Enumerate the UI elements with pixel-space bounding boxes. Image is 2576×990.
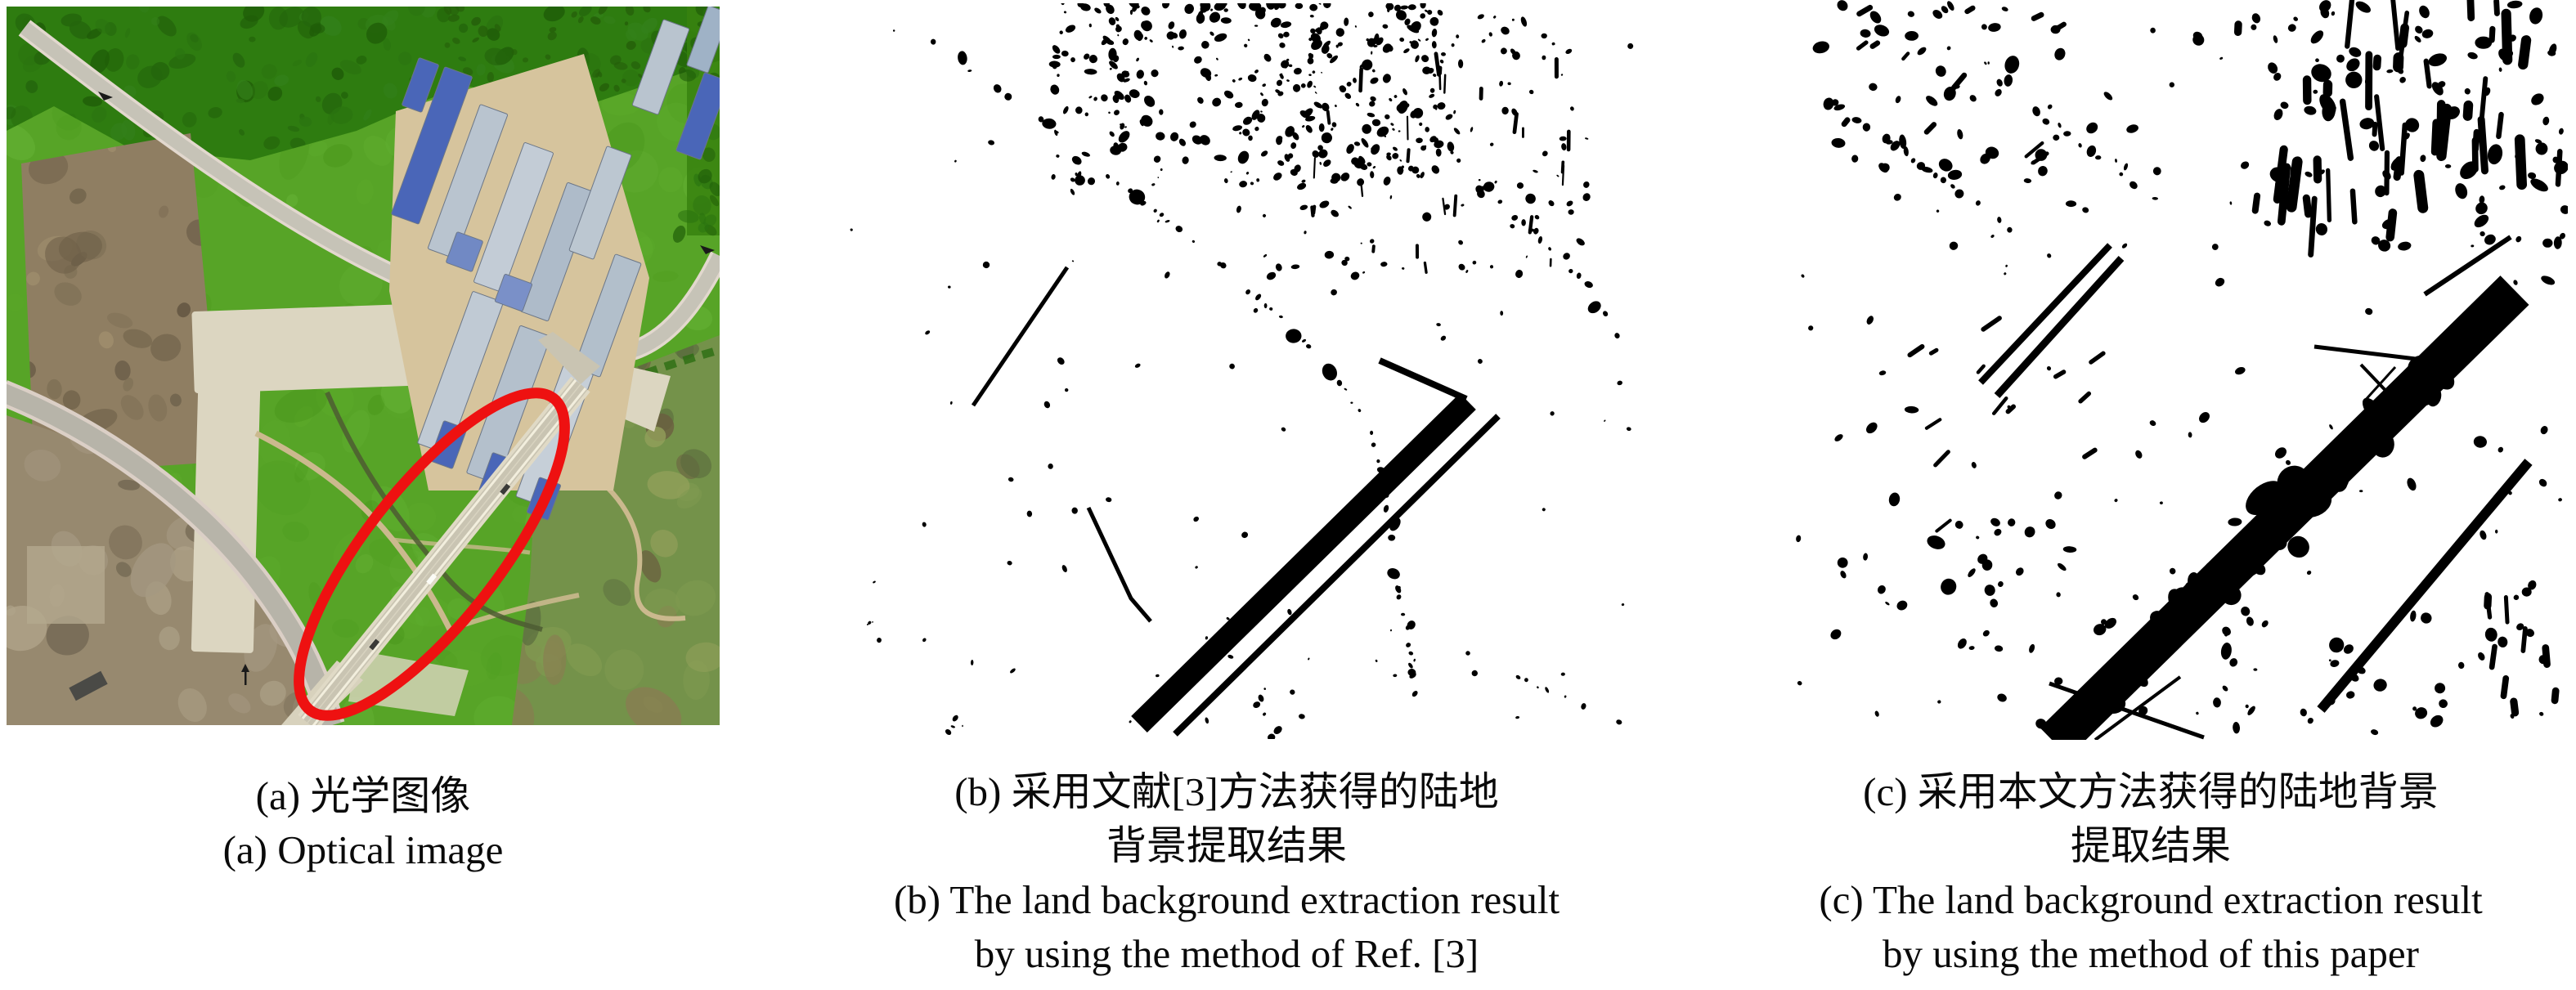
caption-panel-b: (b) 采用文献[3]方法获得的陆地 背景提取结果 (b) The land b… [781,765,1672,981]
figure-land-background-extraction: (a) 光学图像 (a) Optical image (b) 采用文献[3]方法… [0,0,2576,990]
caption-panel-c: (c) 采用本文方法获得的陆地背景 提取结果 (c) The land back… [1717,765,2576,981]
caption-c-line-en-2: by using the method of this paper [1717,927,2576,981]
binary-image-ref3 [846,3,1638,739]
caption-a-line-en: (a) Optical image [7,823,720,877]
caption-b-line-en-1: (b) The land background extraction resul… [781,873,1672,927]
caption-a-line-zh: (a) 光学图像 [7,769,720,823]
caption-c-line-zh-1: (c) 采用本文方法获得的陆地背景 [1717,765,2576,819]
caption-c-line-zh-2: 提取结果 [1717,819,2576,873]
caption-b-line-en-2: by using the method of Ref. [3] [781,927,1672,981]
parking-pad [27,546,105,624]
optical-image [7,7,720,725]
panel-b-binary-ref3 [846,3,1638,739]
caption-c-line-en-1: (c) The land background extraction resul… [1717,873,2576,927]
caption-b-line-zh-1: (b) 采用文献[3]方法获得的陆地 [781,765,1672,819]
binary-image-proposed [1791,0,2568,740]
caption-panel-a: (a) 光学图像 (a) Optical image [7,769,720,877]
caption-b-line-zh-2: 背景提取结果 [781,819,1672,873]
panel-c-binary-proposed [1791,0,2568,740]
panel-a-optical-image [7,7,720,725]
